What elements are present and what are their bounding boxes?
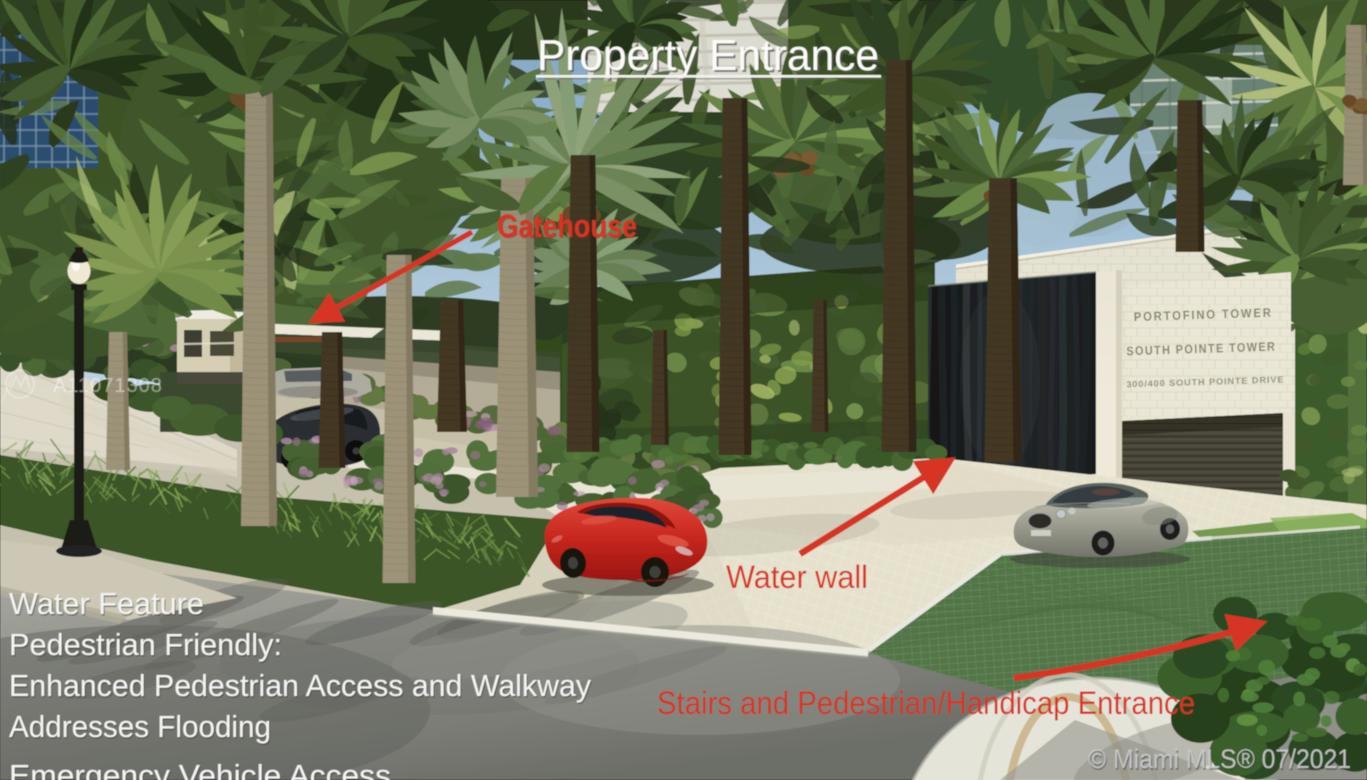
svg-text:Gatehouse: Gatehouse [497, 208, 637, 244]
svg-text:Pedestrian Friendly:: Pedestrian Friendly: [9, 627, 282, 662]
svg-text:Water wall: Water wall [726, 559, 868, 595]
svg-text:Addresses Flooding: Addresses Flooding [9, 709, 271, 744]
svg-text:Emergency Vehicle Access: Emergency Vehicle Access [9, 758, 391, 780]
svg-text:A11071308: A11071308 [53, 375, 163, 397]
svg-text:Water Feature: Water Feature [9, 586, 204, 621]
svg-text:Stairs and Pedestrian/Handicap: Stairs and Pedestrian/Handicap Entrance [657, 685, 1195, 721]
svg-text:© Miami MLS® 07/2021: © Miami MLS® 07/2021 [1088, 744, 1351, 774]
svg-text:Enhanced Pedestrian Access and: Enhanced Pedestrian Access and Walkway [9, 668, 591, 703]
svg-text:Property Entrance: Property Entrance [537, 31, 879, 80]
